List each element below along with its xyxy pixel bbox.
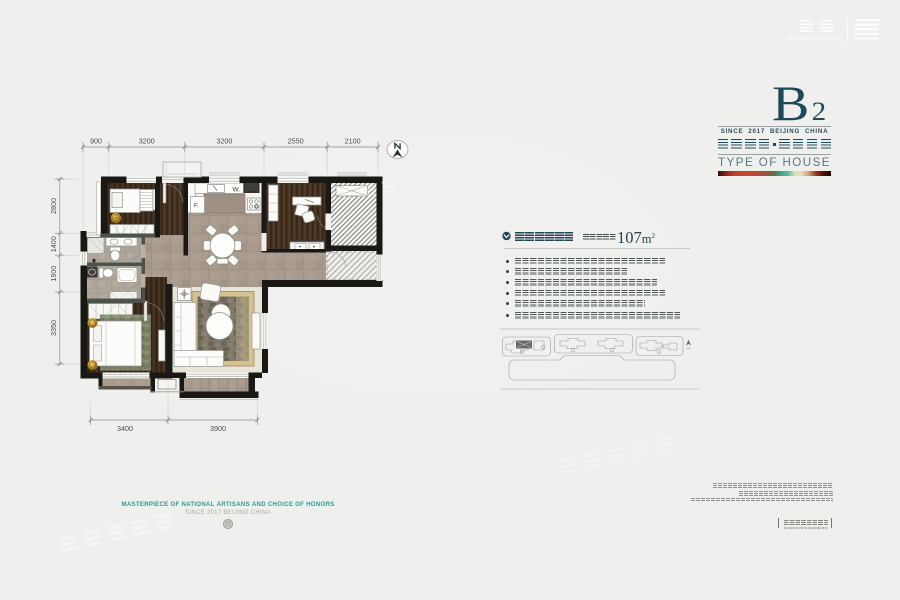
svg-text:2550: 2550 [288,137,304,146]
svg-text:900: 900 [90,137,102,146]
svg-text:3900: 3900 [210,424,226,433]
svg-text:3400: 3400 [117,424,133,433]
svg-text:F.: F. [194,203,199,210]
svg-text:3200: 3200 [216,137,232,146]
svg-text:3350: 3350 [49,320,58,336]
svg-text:3200: 3200 [139,137,155,146]
svg-text:N: N [687,347,690,351]
svg-text:1900: 1900 [49,266,58,282]
svg-text:W.: W. [233,187,241,194]
svg-text:2100: 2100 [345,137,361,146]
svg-text:2800: 2800 [49,198,58,214]
svg-text:1400: 1400 [49,236,58,252]
